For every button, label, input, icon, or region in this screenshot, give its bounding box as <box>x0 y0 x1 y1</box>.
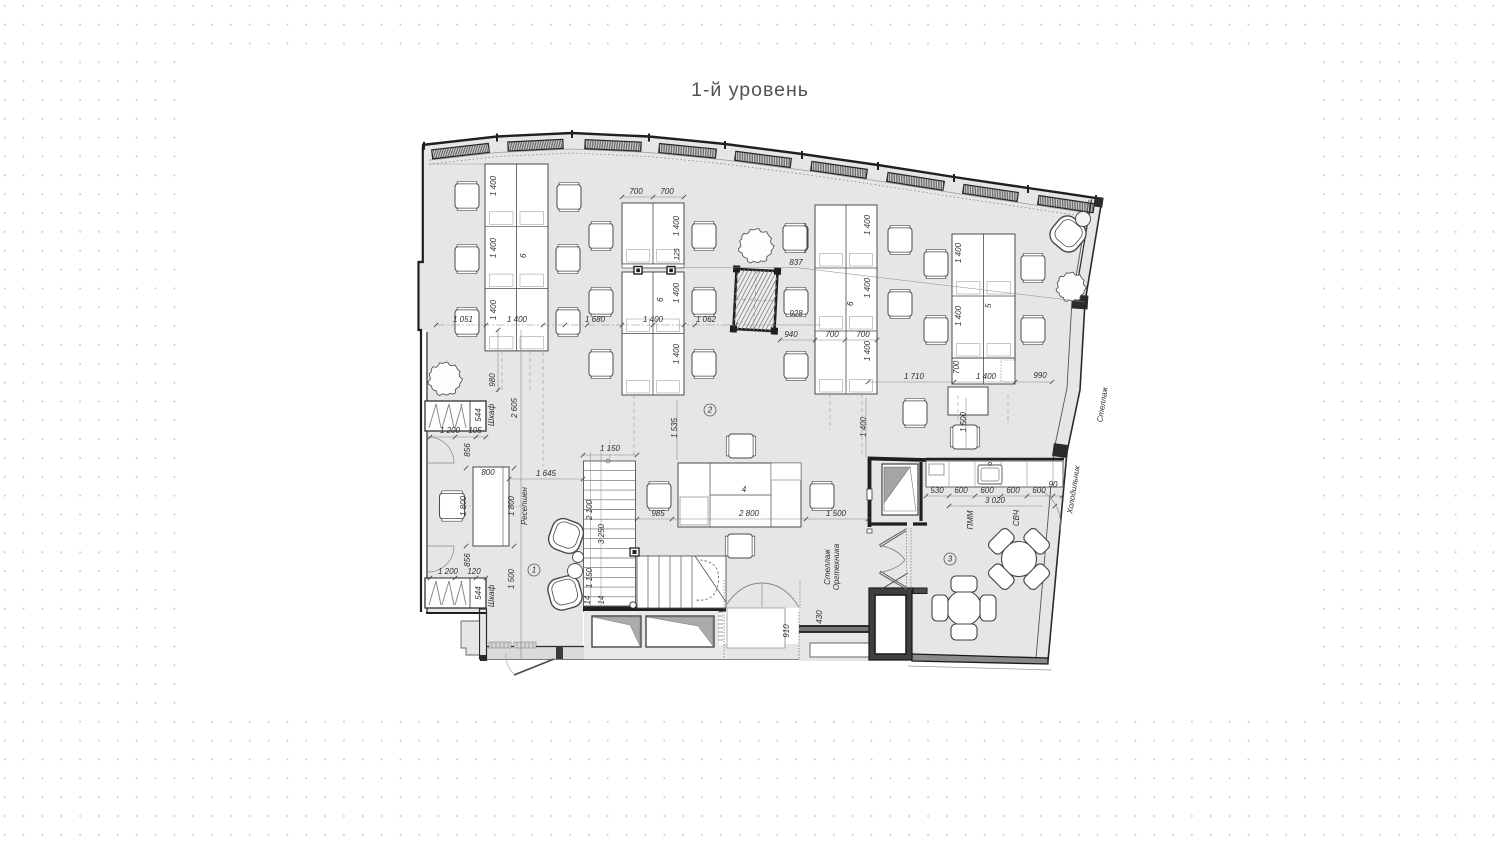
svg-text:910: 910 <box>782 624 791 638</box>
svg-text:5: 5 <box>984 303 993 308</box>
svg-text:430: 430 <box>815 610 824 624</box>
svg-text:Стеллаж: Стеллаж <box>823 549 832 585</box>
svg-text:1 400: 1 400 <box>643 315 664 324</box>
svg-text:700: 700 <box>952 360 961 374</box>
svg-text:3: 3 <box>948 555 953 564</box>
svg-text:3 020: 3 020 <box>985 496 1006 505</box>
svg-text:1 150: 1 150 <box>585 567 594 588</box>
svg-text:1 400: 1 400 <box>954 305 963 326</box>
svg-text:600: 600 <box>1032 486 1046 495</box>
svg-text:1 400: 1 400 <box>863 214 872 235</box>
svg-text:1 400: 1 400 <box>672 282 681 303</box>
svg-text:700: 700 <box>629 187 643 196</box>
svg-text:4: 4 <box>742 485 747 494</box>
svg-text:1 500: 1 500 <box>826 509 847 518</box>
svg-text:1 680: 1 680 <box>585 315 606 324</box>
svg-text:544: 544 <box>474 408 483 422</box>
svg-text:1 400: 1 400 <box>489 175 498 196</box>
svg-text:120: 120 <box>467 567 481 576</box>
svg-text:530: 530 <box>930 486 944 495</box>
svg-text:1 400: 1 400 <box>976 372 997 381</box>
svg-text:1 800: 1 800 <box>507 495 516 516</box>
svg-text:1 400: 1 400 <box>489 299 498 320</box>
svg-text:2 800: 2 800 <box>738 509 760 518</box>
svg-text:800: 800 <box>481 468 495 477</box>
svg-text:Шкаф: Шкаф <box>487 585 496 608</box>
svg-text:1 400: 1 400 <box>507 315 528 324</box>
svg-text:3 250: 3 250 <box>597 523 606 544</box>
svg-text:СВЧ: СВЧ <box>1012 509 1021 526</box>
svg-text:600: 600 <box>954 486 968 495</box>
svg-text:600: 600 <box>980 486 994 495</box>
svg-text:2 100: 2 100 <box>585 499 594 521</box>
svg-text:1 800: 1 800 <box>459 495 468 516</box>
svg-text:1 710: 1 710 <box>904 372 925 381</box>
svg-text:1 400: 1 400 <box>863 340 872 361</box>
svg-text:125: 125 <box>674 248 681 260</box>
svg-text:Холодильник: Холодильник <box>1065 464 1082 516</box>
svg-text:ПММ: ПММ <box>966 510 975 529</box>
svg-text:14: 14 <box>597 595 606 604</box>
svg-text:700: 700 <box>856 330 870 339</box>
svg-text:1 200: 1 200 <box>440 426 461 435</box>
svg-text:856: 856 <box>463 443 472 457</box>
svg-text:700: 700 <box>825 330 839 339</box>
svg-text:700: 700 <box>660 187 674 196</box>
svg-text:Оргтехника: Оргтехника <box>832 543 841 590</box>
svg-text:1 400: 1 400 <box>672 343 681 364</box>
svg-text:1 400: 1 400 <box>954 242 963 263</box>
svg-text:1 200: 1 200 <box>438 567 459 576</box>
svg-text:2 605: 2 605 <box>510 397 519 419</box>
svg-text:940: 940 <box>784 330 798 339</box>
svg-text:1 062: 1 062 <box>696 315 717 324</box>
svg-text:990: 990 <box>1033 371 1047 380</box>
svg-text:2: 2 <box>707 406 713 415</box>
svg-text:1 051: 1 051 <box>453 315 473 324</box>
svg-text:1 400: 1 400 <box>863 277 872 298</box>
svg-text:Шкаф: Шкаф <box>487 404 496 427</box>
svg-text:Стеллаж: Стеллаж <box>1095 386 1110 423</box>
svg-text:856: 856 <box>463 553 472 567</box>
svg-text:928: 928 <box>789 309 803 318</box>
svg-text:837: 837 <box>789 258 803 267</box>
svg-text:Ресепшен: Ресепшен <box>520 486 529 525</box>
svg-text:1: 1 <box>532 566 536 575</box>
svg-text:980: 980 <box>488 373 497 387</box>
svg-text:14: 14 <box>583 595 592 604</box>
svg-text:1 400: 1 400 <box>859 416 868 437</box>
svg-text:6: 6 <box>656 297 665 302</box>
svg-text:6: 6 <box>846 301 855 306</box>
svg-text:1 400: 1 400 <box>489 237 498 258</box>
svg-text:1 500: 1 500 <box>959 411 968 432</box>
svg-text:600: 600 <box>1006 486 1020 495</box>
svg-text:105: 105 <box>468 426 482 435</box>
svg-text:1 500: 1 500 <box>507 568 516 589</box>
svg-text:544: 544 <box>474 586 483 600</box>
svg-text:90: 90 <box>1049 480 1058 489</box>
svg-text:1 400: 1 400 <box>672 215 681 236</box>
svg-text:1 535: 1 535 <box>670 417 679 438</box>
svg-text:6: 6 <box>519 253 528 258</box>
svg-text:1 645: 1 645 <box>536 469 557 478</box>
svg-text:985: 985 <box>651 509 665 518</box>
